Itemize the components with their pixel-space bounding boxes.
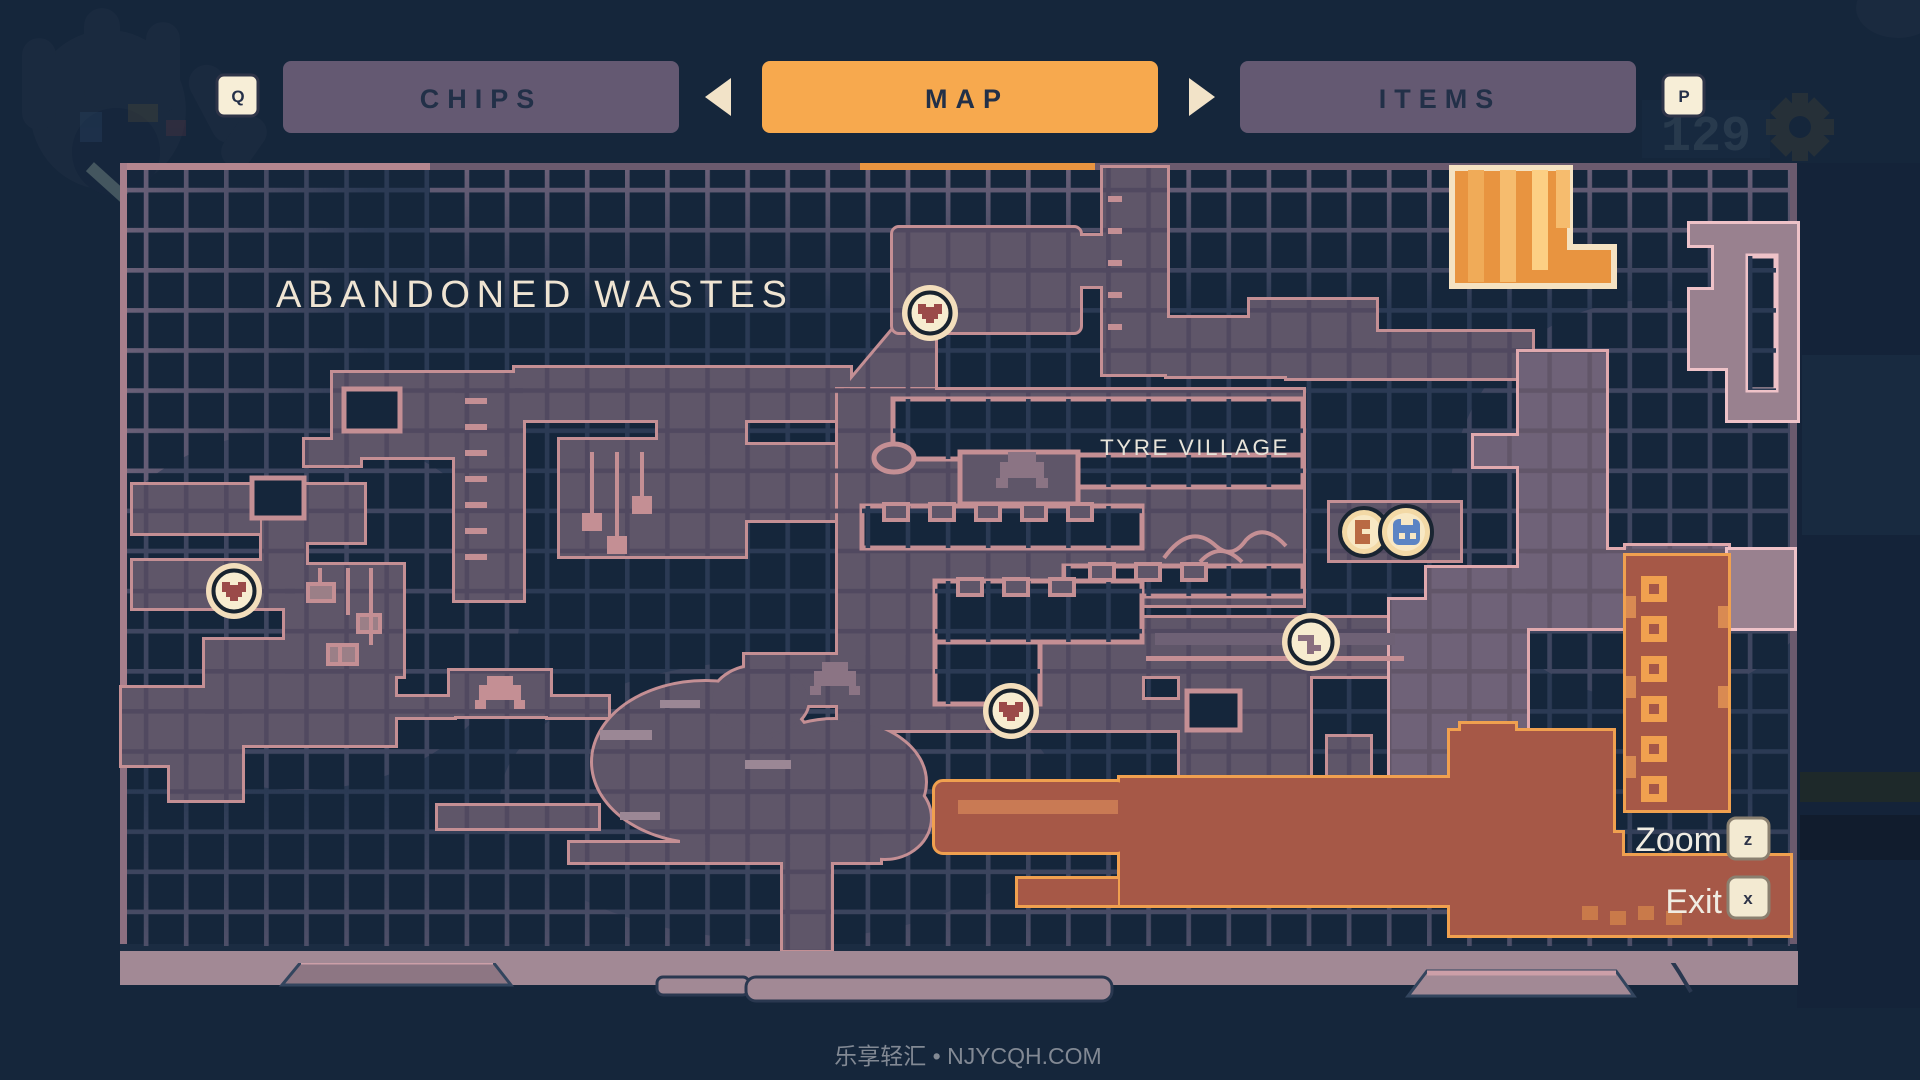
svg-text:x: x bbox=[1743, 889, 1753, 908]
svg-text:Q: Q bbox=[231, 87, 244, 106]
svg-text:乐享轻汇 • NJYCQH.COM: 乐享轻汇 • NJYCQH.COM bbox=[834, 1043, 1101, 1069]
svg-text:129: 129 bbox=[1661, 109, 1751, 166]
svg-text:ITEMS: ITEMS bbox=[1379, 84, 1502, 114]
svg-text:Zoom: Zoom bbox=[1635, 821, 1722, 859]
svg-text:TYRE VILLAGE: TYRE VILLAGE bbox=[1100, 435, 1290, 460]
svg-text:ABANDONED WASTES: ABANDONED WASTES bbox=[276, 274, 794, 316]
svg-text:P: P bbox=[1678, 87, 1689, 106]
svg-text:z: z bbox=[1744, 830, 1753, 849]
svg-text:Exit: Exit bbox=[1665, 883, 1722, 921]
svg-text:CHIPS: CHIPS bbox=[420, 84, 543, 114]
svg-text:MAP: MAP bbox=[925, 84, 1009, 114]
